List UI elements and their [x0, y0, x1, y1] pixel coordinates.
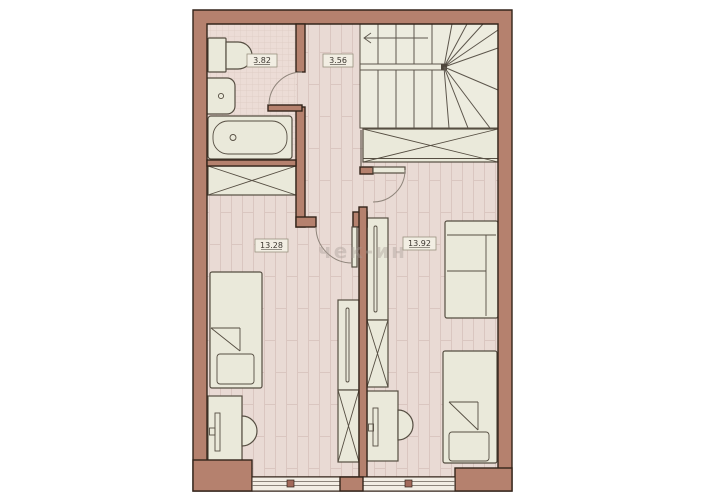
window-mullion: [405, 480, 412, 487]
bed-left: [210, 272, 262, 388]
wall-corner-block-left: [193, 460, 252, 491]
window-mullion: [287, 480, 294, 487]
wardrobe-bedroom-left-top: [208, 166, 296, 195]
window-bedroom-left: [252, 477, 340, 491]
staircase: [360, 24, 498, 128]
sofa-bed-right-top: [445, 221, 498, 318]
window-bedroom-right: [363, 477, 455, 491]
wall-corner-block-right: [455, 468, 512, 491]
floor-plan-canvas: чек-ин 3.82 3.56 13.28 13.92: [0, 0, 710, 500]
room-area-value: 3.56: [329, 56, 347, 65]
room-label-bathroom: 3.82: [247, 54, 277, 67]
door-leaf: [268, 105, 302, 111]
room-area-value: 13.28: [260, 241, 283, 250]
bed-right: [443, 351, 497, 463]
wall-bottom-center-pier: [340, 477, 363, 491]
door-leaf: [373, 167, 405, 173]
wardrobe-central-left: [338, 300, 359, 462]
wardrobe-under-stairs: [363, 129, 498, 162]
room-label-bedroom-left: 13.28: [255, 239, 288, 252]
bathtub: [208, 116, 292, 159]
room-label-bedroom-right: 13.92: [403, 237, 436, 250]
stair-well: [360, 24, 498, 128]
room-area-value: 13.92: [408, 239, 431, 248]
wall-hallway-stub: [296, 217, 316, 227]
desk-left: [208, 396, 242, 467]
wall-bathroom-east-lower: [296, 107, 305, 227]
watermark-text: чек-ин: [318, 239, 407, 263]
wall-bathroom-east-upper: [296, 24, 305, 72]
desk-right: [367, 391, 398, 461]
sink: [207, 78, 235, 114]
wall-bedroom-right-entry-stub: [360, 167, 373, 174]
wall-bathroom-south: [207, 160, 296, 166]
room-area-value: 3.82: [253, 56, 271, 65]
room-label-hallway: 3.56: [323, 54, 353, 67]
floor-plan-page: чек-ин 3.82 3.56 13.28 13.92: [0, 0, 710, 500]
